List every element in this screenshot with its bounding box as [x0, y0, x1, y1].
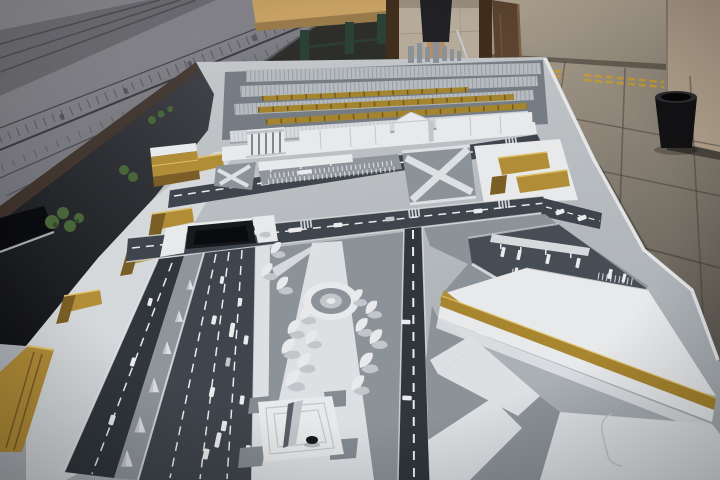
scene-canvas — [0, 0, 720, 480]
photo-architectural-model — [0, 0, 720, 480]
photo-vignette — [0, 0, 720, 480]
